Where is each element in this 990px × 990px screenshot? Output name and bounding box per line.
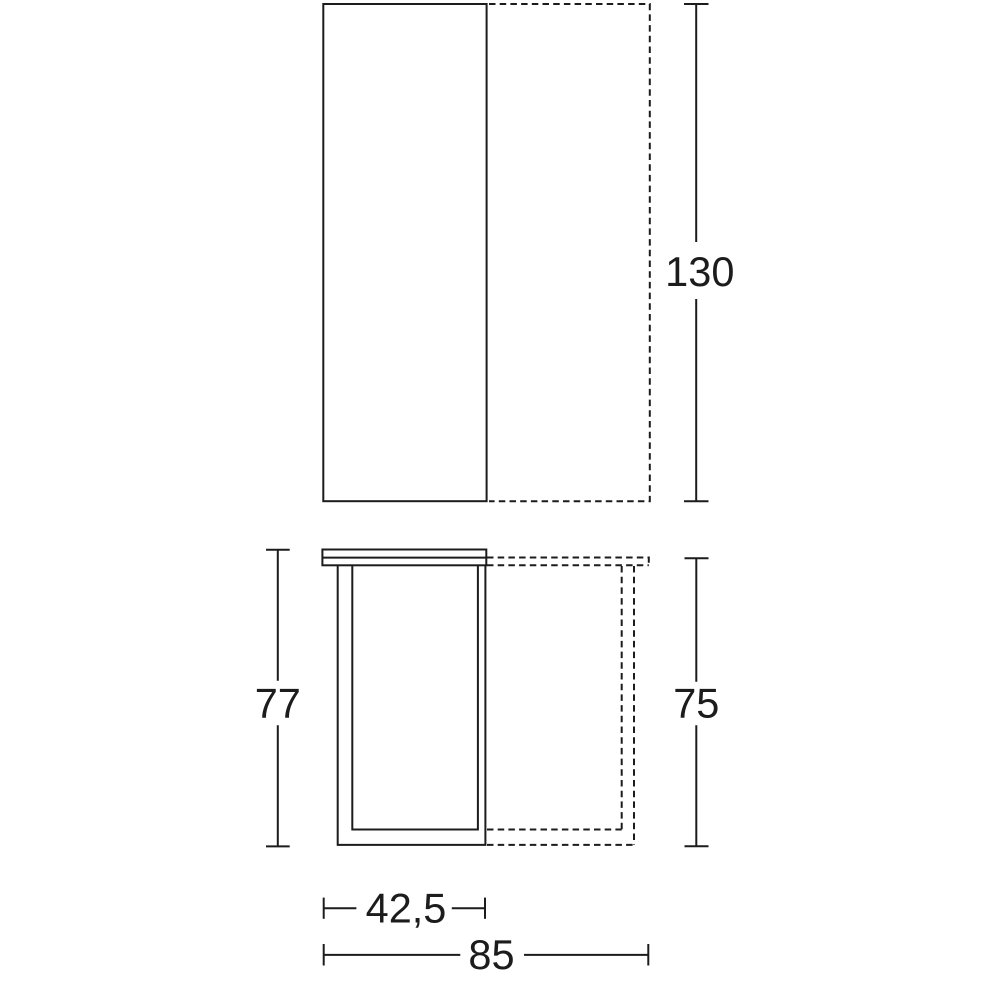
svg-text:130: 130 bbox=[665, 248, 734, 295]
svg-text:42,5: 42,5 bbox=[366, 885, 447, 932]
svg-text:77: 77 bbox=[255, 680, 301, 727]
svg-text:75: 75 bbox=[673, 680, 719, 727]
svg-text:85: 85 bbox=[468, 931, 514, 978]
